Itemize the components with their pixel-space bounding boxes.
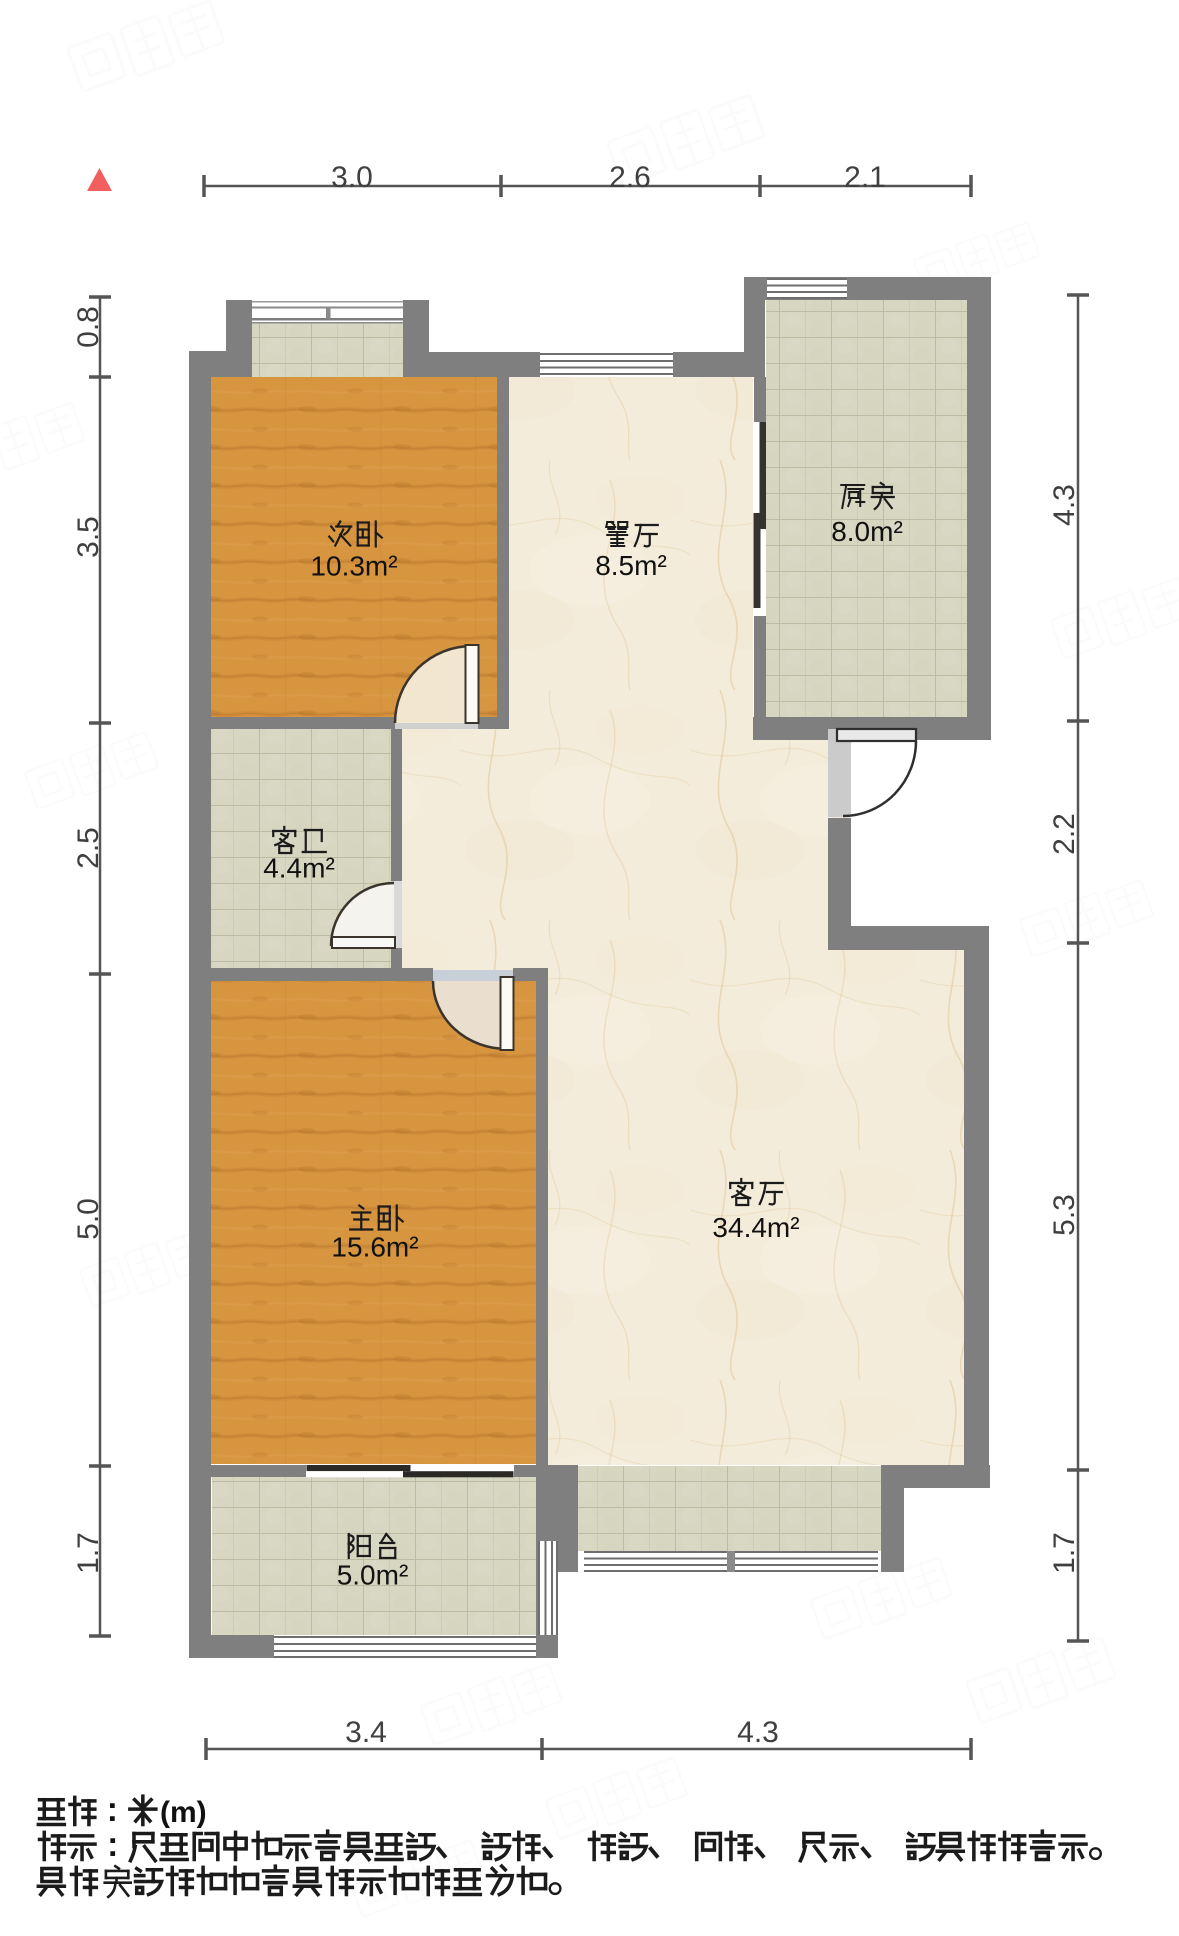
svg-text:3.5: 3.5 (72, 516, 105, 558)
svg-text:1.7: 1.7 (72, 1532, 105, 1574)
svg-text:3.4: 3.4 (345, 1716, 387, 1749)
svg-text:3.0: 3.0 (331, 161, 373, 194)
svg-text:4.3: 4.3 (1048, 484, 1081, 526)
svg-text:4.3: 4.3 (737, 1716, 779, 1749)
svg-text:2.2: 2.2 (1048, 813, 1081, 855)
svg-text:5.0m²: 5.0m² (337, 1560, 409, 1591)
svg-text:(m): (m) (160, 1796, 207, 1829)
svg-text:5.3: 5.3 (1048, 1194, 1081, 1236)
svg-text:4.4m²: 4.4m² (263, 853, 335, 884)
svg-text:5.0: 5.0 (72, 1198, 105, 1240)
svg-text:34.4m²: 34.4m² (712, 1212, 799, 1243)
svg-text:15.6m²: 15.6m² (331, 1232, 418, 1263)
svg-text:2.1: 2.1 (844, 161, 886, 194)
svg-text:8.5m²: 8.5m² (595, 550, 667, 581)
svg-text:10.3m²: 10.3m² (310, 551, 397, 582)
svg-text:0.8: 0.8 (72, 306, 105, 348)
svg-text:2.5: 2.5 (72, 827, 105, 869)
svg-text:2.6: 2.6 (609, 161, 651, 194)
svg-text:1.7: 1.7 (1048, 1532, 1081, 1574)
svg-text:8.0m²: 8.0m² (831, 516, 903, 547)
